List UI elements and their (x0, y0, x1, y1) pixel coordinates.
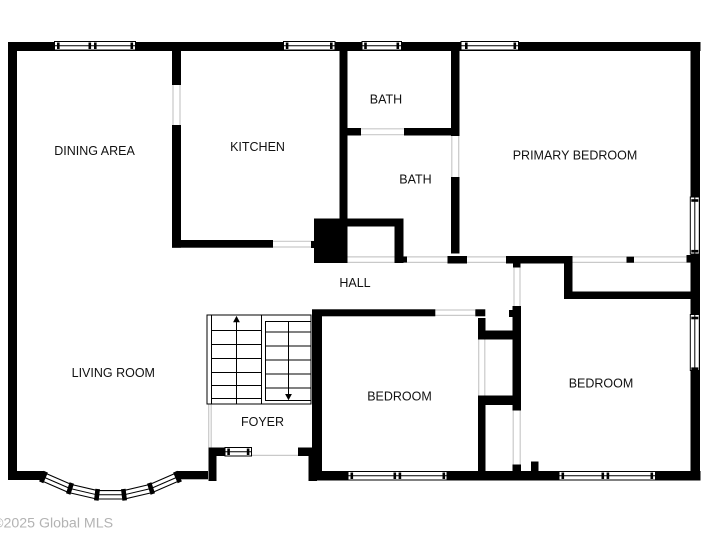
svg-text:KITCHEN: KITCHEN (230, 140, 285, 154)
svg-text:DINING AREA: DINING AREA (54, 144, 135, 158)
svg-text:BATH: BATH (370, 93, 402, 107)
svg-text:FOYER: FOYER (241, 415, 284, 429)
svg-text:BEDROOM: BEDROOM (569, 377, 634, 391)
svg-text:©2025 Global MLS: ©2025 Global MLS (0, 516, 113, 532)
svg-text:PRIMARY BEDROOM: PRIMARY BEDROOM (513, 149, 638, 163)
svg-text:BEDROOM: BEDROOM (367, 390, 432, 404)
svg-text:HALL: HALL (339, 276, 370, 290)
svg-text:BATH: BATH (399, 173, 431, 187)
svg-text:LIVING ROOM: LIVING ROOM (72, 366, 155, 380)
